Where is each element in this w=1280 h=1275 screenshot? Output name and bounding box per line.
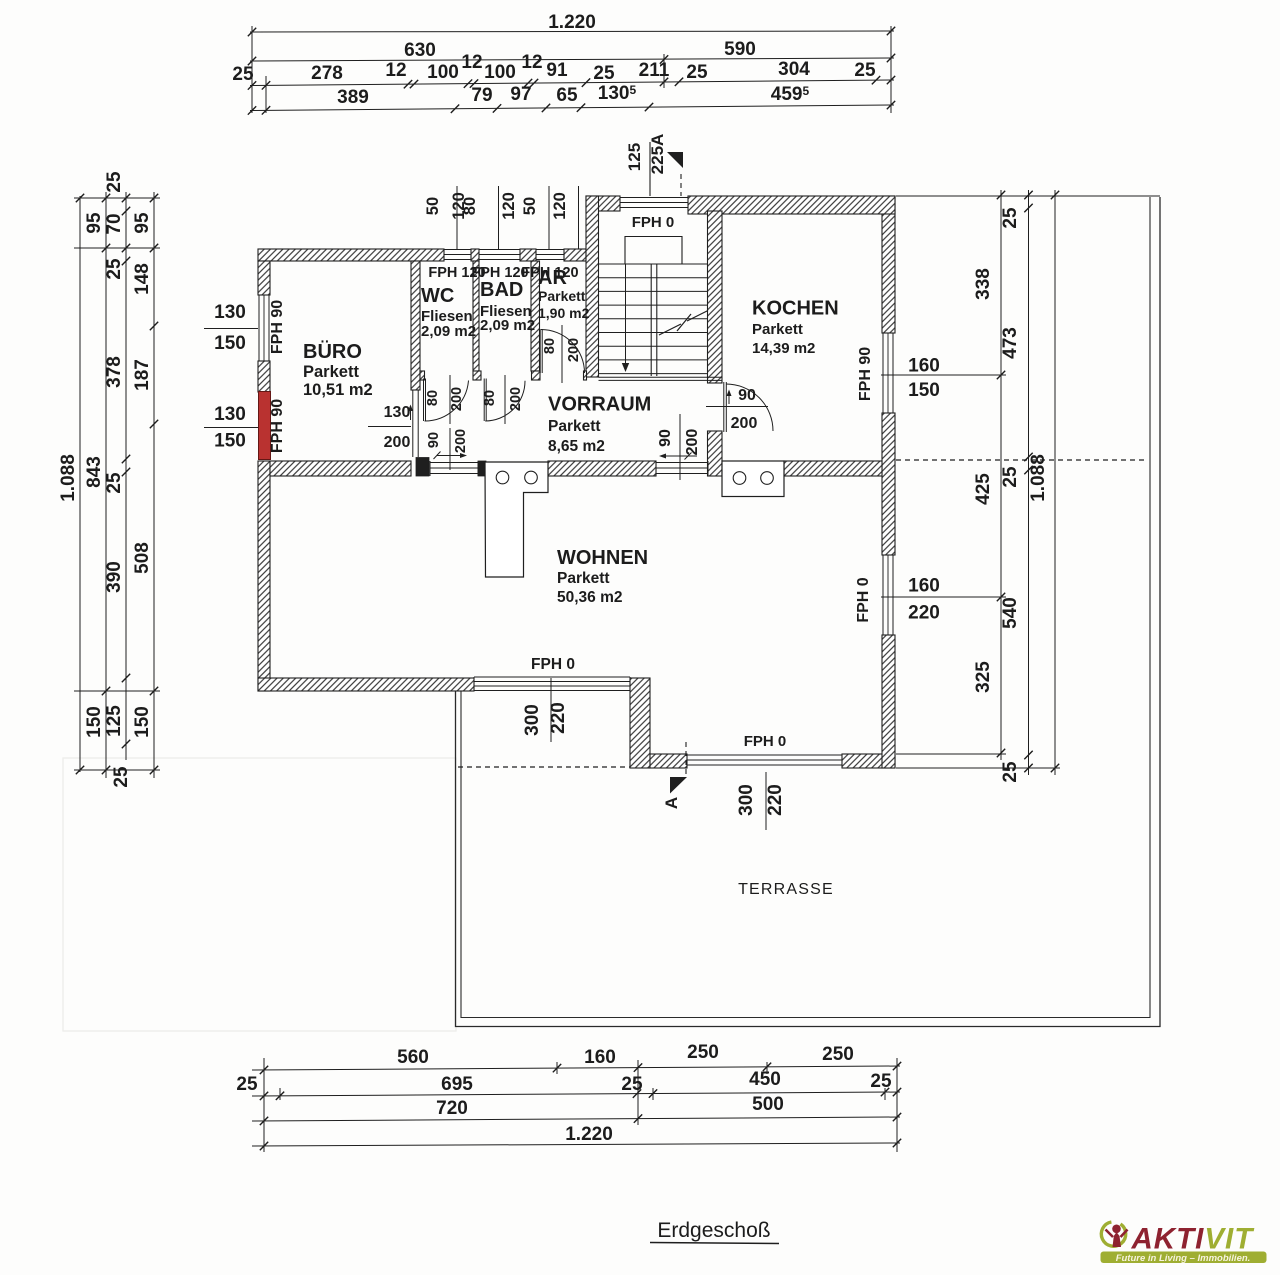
svg-text:Parkett: Parkett (752, 321, 803, 338)
svg-text:25: 25 (621, 1074, 643, 1095)
svg-text:160: 160 (908, 576, 940, 597)
svg-text:25: 25 (111, 766, 132, 788)
svg-text:630: 630 (404, 40, 436, 61)
svg-text:390: 390 (104, 561, 125, 593)
svg-text:843: 843 (84, 456, 105, 488)
svg-text:FPH 0: FPH 0 (632, 214, 675, 231)
svg-text:WC: WC (421, 285, 454, 307)
svg-text:590: 590 (724, 39, 756, 60)
svg-text:WOHNEN: WOHNEN (557, 547, 648, 569)
svg-text:300: 300 (736, 784, 757, 816)
svg-text:25: 25 (1000, 466, 1021, 488)
svg-text:120: 120 (551, 192, 569, 220)
svg-text:2,09 m2: 2,09 m2 (480, 317, 535, 334)
svg-text:Parkett: Parkett (548, 418, 601, 435)
svg-text:540: 540 (1000, 597, 1021, 629)
svg-text:2,09 m2: 2,09 m2 (421, 323, 476, 340)
svg-text:508: 508 (132, 542, 153, 574)
svg-text:25: 25 (104, 258, 125, 280)
svg-text:160: 160 (584, 1047, 616, 1068)
svg-text:FPH 120: FPH 120 (471, 265, 528, 281)
svg-text:FPH 0: FPH 0 (531, 656, 575, 673)
svg-text:1,90 m2: 1,90 m2 (538, 305, 590, 321)
svg-text:50: 50 (424, 197, 442, 215)
svg-text:100: 100 (484, 62, 516, 83)
svg-text:Parkett: Parkett (303, 363, 359, 381)
svg-text:90: 90 (657, 429, 674, 447)
svg-text:FPH 90: FPH 90 (857, 347, 874, 401)
svg-text:65: 65 (556, 85, 578, 106)
svg-text:378: 378 (104, 356, 125, 388)
svg-text:FPH 120: FPH 120 (521, 265, 578, 281)
svg-text:80: 80 (461, 197, 479, 215)
svg-text:80: 80 (425, 390, 441, 406)
svg-text:50: 50 (521, 197, 539, 215)
svg-text:80: 80 (482, 390, 498, 406)
svg-text:91: 91 (546, 60, 568, 81)
svg-text:Erdgeschoß: Erdgeschoß (657, 1219, 770, 1242)
svg-text:130: 130 (214, 404, 246, 425)
svg-text:150: 150 (214, 431, 246, 452)
svg-text:560: 560 (397, 1047, 429, 1068)
svg-text:90: 90 (426, 432, 442, 448)
svg-text:300: 300 (522, 704, 543, 736)
svg-text:473: 473 (1000, 327, 1021, 359)
svg-text:25: 25 (236, 1074, 258, 1095)
svg-text:130: 130 (214, 302, 246, 323)
svg-text:220: 220 (765, 784, 786, 816)
svg-text:200: 200 (566, 338, 582, 362)
svg-text:338: 338 (973, 268, 994, 300)
svg-text:150: 150 (84, 706, 105, 738)
svg-text:80: 80 (542, 338, 558, 354)
svg-text:25: 25 (104, 171, 125, 193)
svg-text:50,36 m2: 50,36 m2 (557, 589, 623, 606)
svg-text:160: 160 (908, 356, 940, 377)
svg-text:150: 150 (908, 380, 940, 401)
svg-text:200: 200 (384, 434, 411, 451)
svg-text:Parkett: Parkett (538, 288, 586, 304)
svg-text:250: 250 (687, 1042, 719, 1063)
svg-text:1.088: 1.088 (1028, 454, 1049, 502)
svg-text:220: 220 (548, 702, 569, 734)
svg-text:VORRAUM: VORRAUM (548, 394, 651, 416)
svg-text:FPH 90: FPH 90 (269, 399, 286, 453)
svg-text:130: 130 (384, 404, 411, 421)
svg-text:450: 450 (749, 1069, 781, 1090)
svg-text:695: 695 (441, 1074, 473, 1095)
svg-text:FPH 0: FPH 0 (744, 733, 787, 750)
svg-text:200: 200 (684, 429, 701, 456)
svg-text:425: 425 (973, 473, 994, 505)
svg-text:12: 12 (461, 52, 482, 73)
svg-text:389: 389 (337, 87, 369, 108)
svg-text:KOCHEN: KOCHEN (752, 298, 839, 320)
svg-text:1.088: 1.088 (58, 454, 79, 502)
svg-text:100: 100 (427, 62, 459, 83)
svg-text:12: 12 (521, 52, 542, 73)
svg-text:148: 148 (132, 263, 153, 295)
svg-text:14,39 m2: 14,39 m2 (752, 340, 815, 357)
svg-text:AKTIVIT: AKTIVIT (1131, 1223, 1256, 1256)
svg-text:25: 25 (1000, 207, 1021, 229)
svg-text:200: 200 (508, 387, 524, 411)
svg-text:25: 25 (232, 64, 254, 85)
svg-text:12: 12 (385, 60, 406, 81)
svg-text:A: A (662, 797, 681, 809)
svg-text:Future in Living – Immobilien.: Future in Living – Immobilien. (1116, 1253, 1251, 1264)
svg-text:125: 125 (625, 143, 644, 171)
svg-text:25: 25 (1000, 761, 1021, 783)
svg-text:10,51 m2: 10,51 m2 (303, 381, 373, 399)
svg-text:90: 90 (738, 387, 756, 404)
svg-text:278: 278 (311, 63, 343, 84)
svg-text:FPH 0: FPH 0 (855, 577, 872, 622)
svg-text:720: 720 (436, 1098, 468, 1119)
svg-text:97: 97 (510, 84, 531, 105)
svg-text:95: 95 (132, 212, 153, 234)
svg-text:200: 200 (453, 429, 469, 453)
svg-text:8,65 m2: 8,65 m2 (548, 438, 605, 455)
svg-text:200: 200 (731, 415, 758, 432)
svg-text:1.220: 1.220 (565, 1124, 613, 1145)
svg-text:187: 187 (132, 359, 153, 391)
svg-text:BAD: BAD (480, 279, 523, 301)
svg-text:1.220: 1.220 (548, 12, 596, 33)
svg-text:79: 79 (471, 85, 492, 106)
svg-text:70: 70 (104, 213, 125, 234)
svg-text:500: 500 (752, 1094, 784, 1115)
svg-text:150: 150 (132, 706, 153, 738)
svg-text:220: 220 (908, 603, 940, 624)
svg-text:150: 150 (214, 333, 246, 354)
svg-text:BÜRO: BÜRO (303, 340, 362, 363)
svg-text:211: 211 (639, 60, 670, 81)
svg-text:25: 25 (686, 62, 708, 83)
svg-text:200: 200 (449, 387, 465, 411)
svg-text:95: 95 (84, 212, 105, 234)
svg-text:25: 25 (593, 63, 615, 84)
svg-text:25: 25 (104, 472, 125, 494)
svg-text:304: 304 (778, 59, 810, 80)
svg-text:FPH 90: FPH 90 (269, 300, 286, 354)
svg-text:125: 125 (104, 705, 125, 737)
svg-text:120: 120 (500, 192, 518, 220)
svg-text:250: 250 (822, 1044, 854, 1065)
svg-text:TERRASSE: TERRASSE (738, 881, 834, 898)
svg-text:25: 25 (854, 60, 876, 81)
svg-text:325: 325 (973, 661, 994, 693)
svg-text:Parkett: Parkett (557, 570, 610, 587)
svg-text:25: 25 (870, 1071, 892, 1092)
svg-text:225A: 225A (648, 134, 667, 175)
